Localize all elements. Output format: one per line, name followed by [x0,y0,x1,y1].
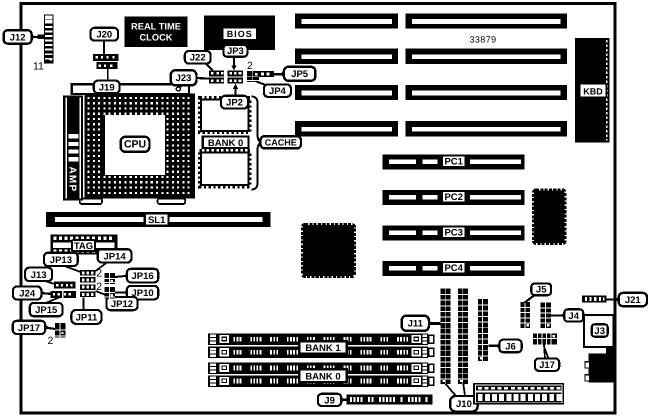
svg-text:JP17: JP17 [18,323,40,334]
svg-text:PC1: PC1 [444,157,463,168]
svg-text:SL1: SL1 [148,215,166,226]
svg-text:J3: J3 [594,326,605,337]
svg-text:PC2: PC2 [444,192,462,203]
svg-text:J21: J21 [625,295,642,306]
svg-text:JP13: JP13 [50,255,72,266]
svg-text:J9: J9 [324,395,335,406]
svg-text:J12: J12 [10,32,26,43]
svg-text:CPU: CPU [124,139,146,151]
svg-text:J6: J6 [505,341,516,352]
svg-text:J24: J24 [19,288,36,299]
svg-text:JP5: JP5 [291,69,309,80]
svg-text:KBD: KBD [583,86,603,96]
svg-text:BANK 1: BANK 1 [305,343,341,354]
svg-text:JP3: JP3 [227,46,244,57]
svg-text:2: 2 [48,335,54,347]
svg-text:J23: J23 [176,73,192,84]
svg-text:JP12: JP12 [111,299,133,310]
svg-text:JP11: JP11 [76,312,98,323]
svg-text:J22: J22 [190,53,206,64]
svg-text:J11: J11 [408,319,424,330]
svg-text:REAL TIME: REAL TIME [131,22,181,32]
svg-text:33879: 33879 [470,35,497,45]
svg-text:JP16: JP16 [131,271,153,282]
svg-text:JP15: JP15 [35,305,58,316]
svg-text:TAG: TAG [74,241,93,252]
svg-text:J19: J19 [99,82,115,93]
svg-text:CACHE: CACHE [265,138,297,148]
svg-text:J10: J10 [456,399,472,410]
svg-text:AMP: AMP [67,167,78,193]
svg-text:PC3: PC3 [444,228,462,239]
svg-text:J20: J20 [96,30,112,41]
svg-text:J17: J17 [539,360,555,371]
svg-text:JP4: JP4 [269,86,287,97]
svg-text:JP2: JP2 [226,98,243,109]
svg-text:BANK 0: BANK 0 [208,138,243,149]
svg-text:J5: J5 [536,285,547,296]
svg-text:2: 2 [247,60,253,72]
svg-text:11: 11 [33,60,44,72]
svg-text:CLOCK: CLOCK [139,32,172,42]
svg-text:PC4: PC4 [444,263,463,274]
svg-text:BANK 0: BANK 0 [305,371,340,382]
svg-text:BIOS: BIOS [227,29,253,39]
svg-text:J13: J13 [31,270,47,281]
svg-text:J4: J4 [568,311,579,322]
svg-text:JP14: JP14 [104,251,127,262]
svg-text:2: 2 [96,281,102,293]
svg-text:2: 2 [96,267,102,279]
